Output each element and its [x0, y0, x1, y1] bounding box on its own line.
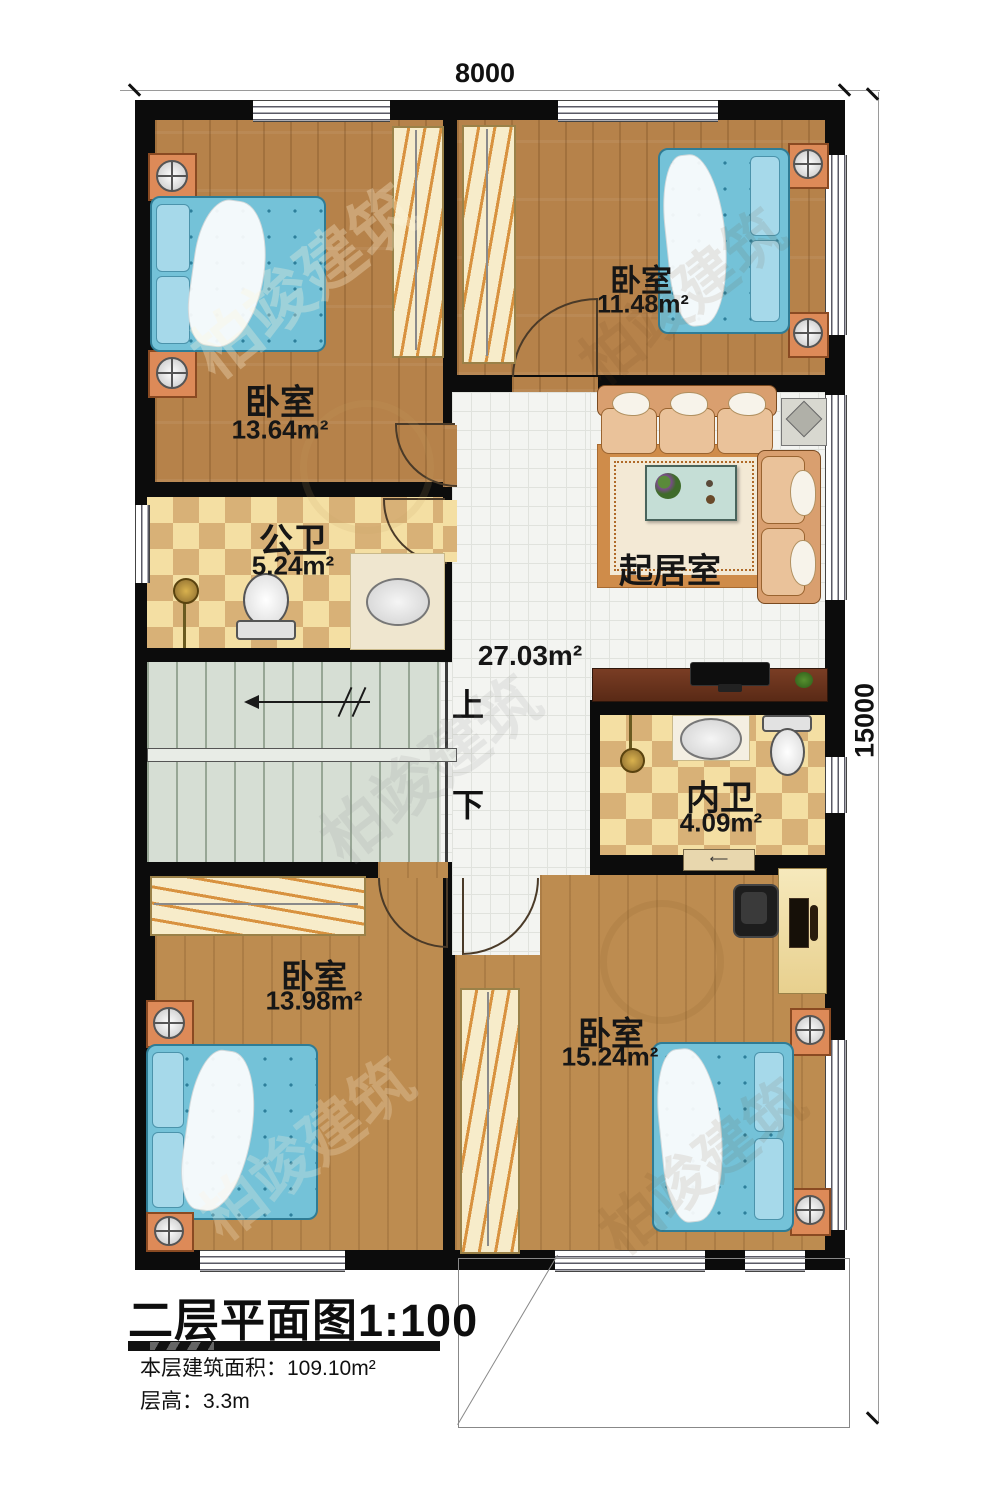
door-leaf	[462, 878, 464, 953]
stairs-down-label: 下	[452, 780, 484, 826]
lamp	[793, 318, 823, 348]
shower-head	[620, 748, 645, 773]
wardrobe	[150, 876, 366, 936]
window	[825, 757, 847, 813]
tv-monitor	[690, 662, 770, 686]
shower-head	[173, 578, 199, 604]
toilet-base	[236, 620, 296, 640]
sofa-pillow	[612, 392, 650, 416]
lamp	[154, 1216, 184, 1246]
toilet	[770, 728, 805, 776]
lamp	[795, 1195, 825, 1225]
wardrobe-rod	[486, 129, 488, 356]
shower-stem	[183, 600, 186, 648]
window	[135, 505, 150, 583]
living-room-area: 27.03m²	[478, 640, 582, 672]
stairwell-floor	[147, 662, 440, 862]
top-dimension-line	[120, 90, 880, 91]
stair-arrow-line	[258, 701, 370, 703]
pillow	[156, 204, 190, 272]
window	[558, 100, 718, 122]
window	[825, 395, 847, 600]
wardrobe	[460, 988, 520, 1254]
pillow	[754, 1052, 784, 1132]
lamp	[156, 357, 188, 389]
window	[253, 100, 390, 122]
stairs-up-label: 上	[452, 680, 484, 726]
bedroom-sw-area: 13.98m²	[266, 986, 363, 1017]
floor-height-note: 层高：3.3m	[140, 1385, 250, 1415]
stair-landing	[147, 748, 457, 762]
top-dimension-label: 8000	[440, 58, 530, 89]
lamp	[793, 149, 823, 179]
pillow	[754, 1138, 784, 1220]
pillow	[750, 156, 780, 236]
door-leaf	[446, 878, 448, 946]
shower-stem	[629, 715, 632, 751]
door-opening	[512, 377, 598, 392]
wardrobe-rod	[487, 992, 489, 1246]
tv-stand	[718, 684, 742, 692]
bedroom-se-area: 15.24m²	[562, 1042, 659, 1073]
sink	[680, 718, 742, 760]
wardrobe	[462, 125, 516, 364]
sofa-pillow	[790, 540, 816, 586]
floor-plan-page: 8000 15000 ⟵	[0, 0, 1000, 1485]
ensuite-bath-area: 4.09m²	[680, 808, 762, 839]
wardrobe-rod	[154, 903, 358, 905]
bedroom-nw-area: 13.64m²	[232, 415, 329, 446]
lamp	[153, 1007, 185, 1039]
stair-arrow-head	[244, 695, 259, 709]
sofa-pillow	[790, 470, 816, 516]
lamp	[156, 160, 188, 192]
table-dot	[706, 480, 713, 487]
bedroom-ne-area: 11.48m²	[597, 291, 689, 320]
door-opening	[378, 862, 448, 878]
pillow	[156, 276, 190, 344]
roof-outline	[458, 1258, 850, 1428]
plant	[795, 672, 813, 688]
pillow	[750, 240, 780, 322]
sink	[366, 578, 430, 626]
desk-item	[810, 905, 818, 941]
window	[200, 1250, 345, 1272]
title-underline-decor	[150, 1342, 214, 1350]
sofa-pillow	[728, 392, 766, 416]
plan-title: 二层平面图1:100	[128, 1284, 478, 1349]
stair-rail	[445, 662, 448, 862]
table-dot	[706, 495, 715, 504]
living-room-name: 起居室	[619, 544, 721, 593]
desk-monitor	[789, 898, 809, 948]
lamp	[795, 1015, 825, 1045]
chair-seat	[741, 892, 767, 924]
floor-area-note: 本层建筑面积：109.10m²	[140, 1352, 376, 1382]
sliding-door-ensuite: ⟵	[683, 849, 755, 871]
pillow	[152, 1052, 184, 1128]
flower-decor	[655, 473, 681, 499]
wardrobe	[392, 126, 444, 358]
door-leaf	[383, 498, 445, 500]
pillow	[152, 1132, 184, 1208]
wardrobe-rod	[415, 130, 417, 350]
right-dimension-label: 15000	[850, 671, 881, 771]
public-bath-area: 5.24m²	[252, 551, 334, 582]
door-leaf	[395, 423, 455, 425]
sofa-pillow	[670, 392, 708, 416]
